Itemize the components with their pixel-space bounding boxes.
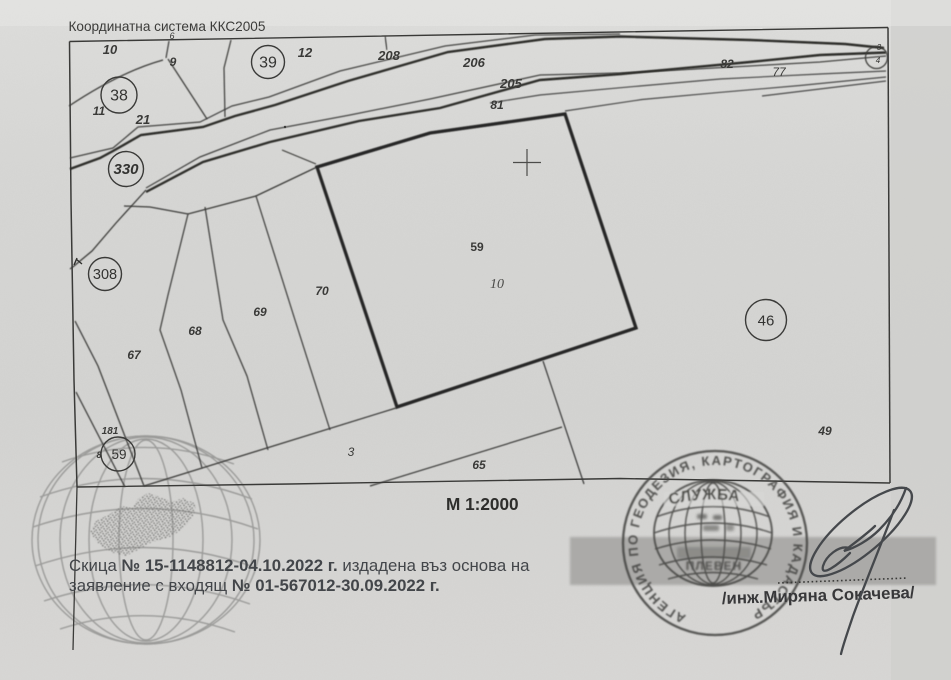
svg-text:59: 59 [470,240,484,254]
svg-text:заявление с входящ № 01-567012: заявление с входящ № 01-567012-30.09.202… [69,576,440,595]
svg-text:308: 308 [93,267,117,283]
svg-text:10: 10 [490,277,504,292]
svg-text:65: 65 [472,458,486,472]
svg-text:8: 8 [96,450,101,460]
svg-text:67: 67 [127,348,142,362]
svg-text:21: 21 [135,112,150,127]
svg-text:ПЛЕВЕН: ПЛЕВЕН [686,559,742,573]
svg-text:12: 12 [298,45,313,60]
svg-text:11: 11 [93,104,106,118]
svg-text:М 1:2000: М 1:2000 [446,494,519,514]
svg-text:181: 181 [102,426,119,437]
svg-text:70: 70 [315,284,329,298]
svg-text:68: 68 [188,324,202,338]
svg-text:46: 46 [758,313,775,330]
svg-text:77: 77 [772,65,787,79]
svg-text:206: 206 [462,55,485,70]
svg-text:330: 330 [113,161,139,178]
svg-text:9: 9 [170,55,177,69]
svg-text:81: 81 [490,98,504,112]
svg-text:208: 208 [377,48,400,63]
svg-text:38: 38 [110,88,128,105]
svg-text:82: 82 [720,57,734,71]
svg-text:69: 69 [253,305,267,319]
svg-text:205: 205 [499,76,522,91]
svg-text:4: 4 [876,56,881,65]
svg-text:3: 3 [348,445,355,459]
svg-text:Координатна система ККС2005: Координатна система ККС2005 [69,19,266,34]
svg-text:39: 39 [259,55,277,72]
svg-text:Скица № 15-1148812-04.10.2022: Скица № 15-1148812-04.10.2022 г. издаден… [69,556,530,575]
svg-text:10: 10 [103,42,118,57]
svg-text:3: 3 [877,43,882,52]
svg-text:49: 49 [817,424,832,438]
svg-text:59: 59 [111,447,126,462]
